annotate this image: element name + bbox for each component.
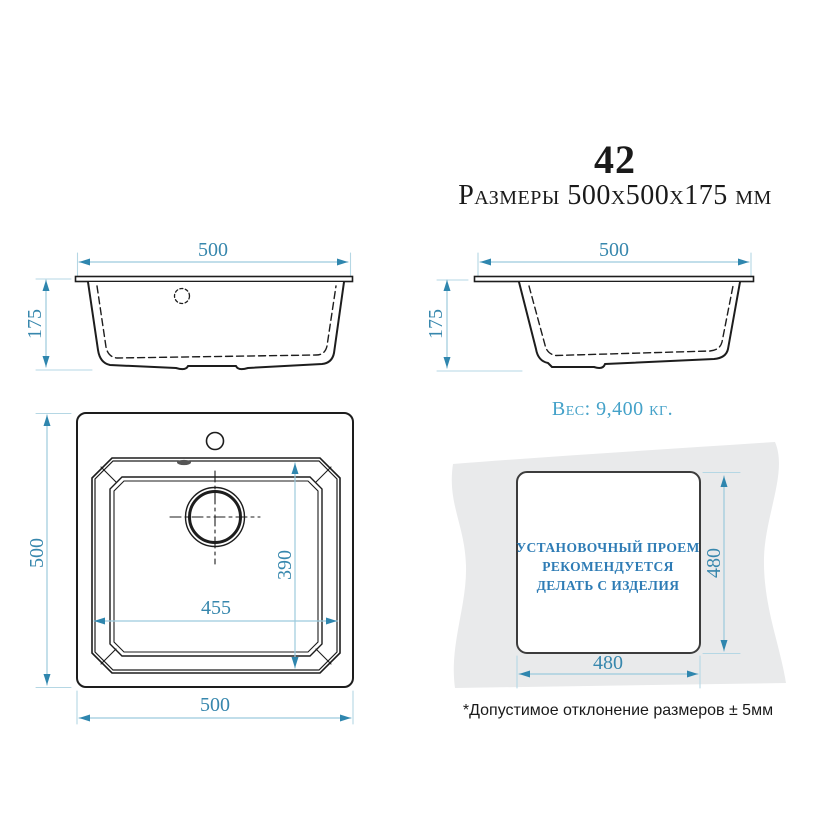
size-title: Размеры 500х500х175 мм [440,180,790,212]
side-sink-rim [475,277,754,282]
install-instruction: УСТАНОВОЧНЫЙ ПРОЕМ РЕКОМЕНДУЕТСЯ ДЕЛАТЬ … [513,538,703,595]
side-sink-body-outline [519,282,740,368]
install-instruction-line1: УСТАНОВОЧНЫЙ ПРОЕМ [513,538,703,557]
front-sink-rim [76,277,353,282]
faucet-hole [207,433,224,450]
tolerance-footnote: *Допустимое отклонение размеров ± 5мм [440,702,796,720]
side-view: 500 175 [425,239,754,371]
top-view-width-dim-text: 500 [200,694,230,716]
side-width-dim-text: 500 [599,239,629,261]
weight-text: Вес: 9,400 кг. [450,398,775,421]
top-view: 500 500 455 390 [26,413,353,724]
bowl-depth-dim-text: 390 [274,550,296,580]
install-instruction-line2: РЕКОМЕНДУЕТСЯ [513,557,703,576]
cutout-width-dim-text: 480 [593,652,623,674]
install-instruction-line3: ДЕЛАТЬ С ИЗДЕЛИЯ [513,576,703,595]
side-height-dim-text: 175 [425,309,447,339]
model-number: 42 [450,136,780,183]
overflow-slot [177,460,191,465]
sink-dimension-sheet: 500 175 500 175 [0,0,832,832]
bowl-width-dim-text: 455 [201,597,231,619]
top-view-height-dim-text: 500 [26,538,48,568]
front-view: 500 175 [24,239,353,370]
cutout-height-dim-text: 480 [703,548,725,578]
front-width-dim-text: 500 [198,239,228,261]
front-height-dim-text: 175 [24,309,46,339]
